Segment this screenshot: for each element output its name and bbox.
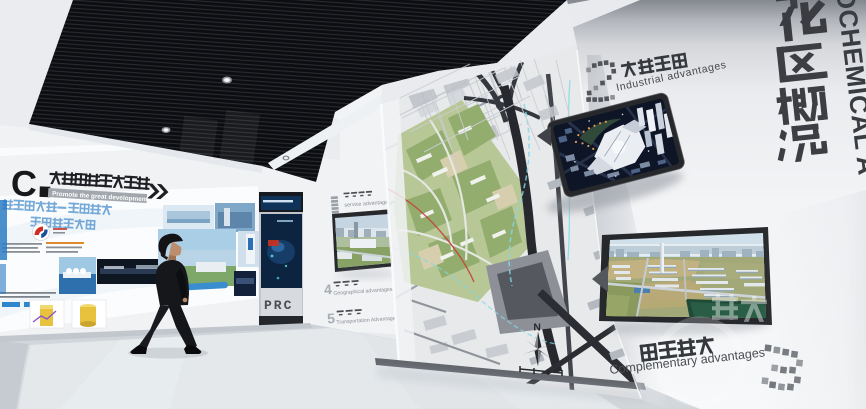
svg-text:4: 4 [323,281,332,298]
svg-text:PRC: PRC [264,298,293,313]
svg-text:N: N [533,323,540,334]
svg-text:5: 5 [327,310,336,327]
svg-text:C: C [10,162,37,204]
